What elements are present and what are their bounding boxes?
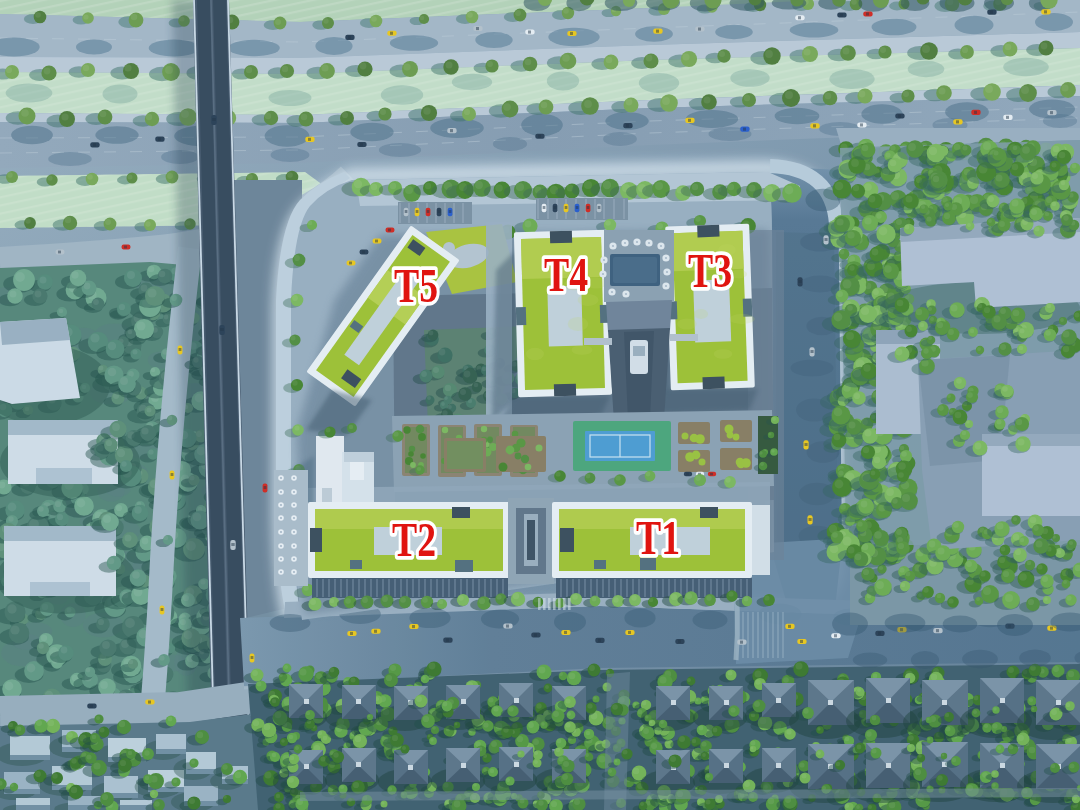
svg-text:T5: T5 (394, 258, 438, 313)
svg-text:T3: T3 (688, 243, 732, 298)
svg-text:T2: T2 (392, 512, 436, 567)
svg-text:T4: T4 (544, 247, 588, 302)
svg-text:T1: T1 (636, 510, 680, 565)
